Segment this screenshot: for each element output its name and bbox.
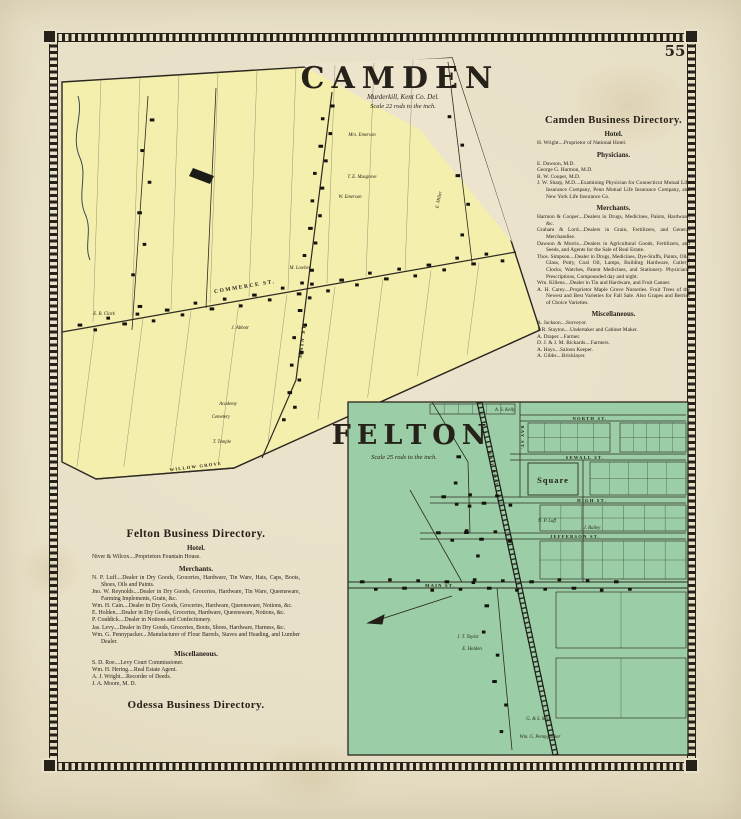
directory-entry: J. A. Moore, M. D. bbox=[92, 681, 300, 688]
building-mark bbox=[320, 187, 325, 190]
building-mark bbox=[293, 406, 297, 409]
felton-directory: Felton Business Directory. Hotel. Niver … bbox=[92, 528, 300, 711]
directory-entry: P. Craddick....Dealer in Notions and Con… bbox=[92, 617, 300, 624]
building-mark bbox=[339, 279, 344, 282]
building-mark bbox=[416, 579, 420, 582]
building-mark bbox=[614, 580, 619, 583]
directory-section-heading: Hotel. bbox=[92, 544, 300, 552]
building-mark bbox=[494, 530, 498, 533]
building-mark bbox=[485, 253, 489, 256]
directory-entry: A. H. Carey....Proprietor Maple Grove Nu… bbox=[537, 287, 690, 307]
building-mark bbox=[300, 282, 304, 285]
building-mark bbox=[430, 589, 434, 592]
building-mark bbox=[479, 538, 484, 541]
building-mark bbox=[572, 587, 577, 590]
directory-section-heading: Miscellaneous. bbox=[92, 650, 300, 658]
building-mark bbox=[298, 379, 302, 382]
map-label: Wm. G. Pennypacker bbox=[520, 735, 561, 740]
map-label: Mrs. Emerson bbox=[347, 133, 376, 138]
building-mark bbox=[460, 233, 464, 236]
building-mark bbox=[93, 328, 97, 331]
directory-title: Camden Business Directory. bbox=[537, 115, 690, 126]
building-mark bbox=[558, 578, 562, 581]
map-label: G. & S. Mill bbox=[526, 717, 550, 722]
directory-entry: H. Wright....Proprietor of National Hote… bbox=[537, 140, 690, 147]
map-label: M. Lowber bbox=[288, 266, 310, 271]
building-mark bbox=[473, 578, 477, 581]
building-mark bbox=[360, 580, 365, 583]
odessa-directory-heading: Odessa Business Directory. bbox=[92, 699, 300, 711]
building-mark bbox=[413, 274, 417, 277]
directory-entry: D. J. & J. M. Rickards....Farmers. bbox=[537, 340, 690, 347]
directory-entry: A. Hays....Saloon Keeper. bbox=[537, 347, 690, 354]
directory-title: Felton Business Directory. bbox=[92, 528, 300, 540]
building-mark bbox=[140, 149, 144, 152]
camden-directory: Camden Business Directory. Hotel. H. Wri… bbox=[537, 115, 690, 360]
street-label-jefferson: JEFFERSON ST. bbox=[550, 534, 600, 539]
building-mark bbox=[460, 144, 464, 147]
building-mark bbox=[310, 283, 314, 286]
building-mark bbox=[484, 604, 489, 607]
building-mark bbox=[455, 257, 459, 260]
building-mark bbox=[106, 317, 110, 320]
building-mark bbox=[287, 391, 292, 394]
building-mark bbox=[282, 418, 286, 421]
building-mark bbox=[194, 302, 198, 305]
building-mark bbox=[465, 529, 469, 532]
building-mark bbox=[308, 227, 313, 230]
building-mark bbox=[297, 292, 302, 295]
directory-entry: Wm. Killens....Dealer in Tin and Hardwar… bbox=[537, 280, 690, 287]
building-mark bbox=[314, 241, 318, 244]
building-mark bbox=[355, 283, 359, 286]
building-mark bbox=[495, 494, 499, 497]
building-mark bbox=[586, 579, 590, 582]
directory-entry: E. Dawson, M.D. bbox=[537, 161, 690, 168]
map-label: W. Emerson bbox=[338, 195, 362, 200]
building-mark bbox=[504, 703, 508, 706]
building-mark bbox=[384, 277, 389, 280]
building-mark bbox=[321, 117, 325, 120]
felton-map: FELTON Scale 25 rods to the inch. NORTH … bbox=[332, 402, 688, 755]
building-mark bbox=[138, 305, 143, 308]
building-mark bbox=[329, 132, 333, 135]
directory-entry: Jas. Levy....Dealer in Dry Goods, Grocer… bbox=[92, 625, 300, 632]
building-mark bbox=[466, 203, 470, 206]
camden-map-region: Murderkill, Kent Co. Del. bbox=[366, 93, 439, 101]
building-mark bbox=[468, 505, 472, 508]
building-mark bbox=[459, 588, 463, 591]
building-mark bbox=[303, 254, 307, 257]
building-mark bbox=[268, 298, 272, 301]
directory-section-heading: Miscellaneous. bbox=[537, 310, 690, 318]
directory-section-heading: Merchants. bbox=[537, 204, 690, 212]
building-mark bbox=[501, 579, 505, 582]
building-mark bbox=[487, 587, 492, 590]
directory-entry: Harmon & Cooper....Dealers in Drugs, Med… bbox=[537, 214, 690, 227]
building-mark bbox=[441, 495, 446, 498]
building-mark bbox=[471, 262, 476, 265]
building-mark bbox=[472, 581, 476, 584]
building-mark bbox=[456, 455, 461, 458]
map-label: E. Holden bbox=[461, 647, 482, 652]
building-mark bbox=[308, 296, 312, 299]
building-mark bbox=[388, 578, 392, 581]
street-label-main: MAIN ST. bbox=[425, 583, 455, 588]
map-label: J. T. Taylor bbox=[457, 635, 479, 640]
map-label: A. S. Kelly bbox=[494, 408, 516, 413]
directory-entry: A. Draper....Farmer. bbox=[537, 334, 690, 341]
building-mark bbox=[143, 243, 147, 246]
building-mark bbox=[628, 588, 632, 591]
street-label-bay: BAY ST. bbox=[520, 425, 525, 450]
building-mark bbox=[468, 493, 472, 496]
building-mark bbox=[281, 287, 285, 290]
building-mark bbox=[427, 264, 432, 267]
map-label-square: Square bbox=[537, 475, 569, 485]
building-mark bbox=[482, 631, 486, 634]
building-mark bbox=[318, 145, 323, 148]
building-mark bbox=[543, 588, 547, 591]
building-mark bbox=[448, 115, 452, 118]
map-label: J. Bailey bbox=[584, 526, 602, 531]
building-mark bbox=[122, 322, 127, 325]
building-mark bbox=[501, 259, 505, 262]
building-mark bbox=[509, 504, 513, 507]
directory-section-heading: Merchants. bbox=[92, 565, 300, 573]
map-label: T. Temple bbox=[213, 440, 232, 445]
building-mark bbox=[292, 336, 296, 339]
camden-map-scale: Scale 22 rods to the inch. bbox=[370, 103, 436, 110]
directory-entry: A. J. Wright....Recorder of Deeds. bbox=[92, 674, 300, 681]
building-mark bbox=[239, 304, 243, 307]
building-mark bbox=[152, 319, 156, 322]
felton-map-scale: Scale 25 rods to the inch. bbox=[371, 454, 437, 461]
building-mark bbox=[210, 307, 215, 310]
building-mark bbox=[148, 181, 152, 184]
camden-map-title: CAMDEN bbox=[301, 61, 500, 96]
map-label: J. Abbott bbox=[231, 326, 249, 331]
building-mark bbox=[397, 268, 401, 271]
directory-entry: A. Gibbs....Bricklayer. bbox=[537, 353, 690, 360]
street-label-sewall: SEWALL ST. bbox=[566, 455, 604, 460]
building-mark bbox=[252, 294, 257, 297]
building-mark bbox=[298, 309, 303, 312]
directory-entry: Wm. G. Pennypacker....Manufacturer of Fl… bbox=[92, 632, 300, 646]
building-mark bbox=[492, 680, 497, 683]
felton-map-title: FELTON bbox=[332, 420, 493, 451]
building-mark bbox=[600, 589, 604, 592]
map-label: T. E. Musgrove bbox=[347, 175, 377, 180]
directory-entry: Wm. H. Hering....Real Estate Agent. bbox=[92, 667, 300, 674]
map-label: Cemetery bbox=[212, 415, 231, 420]
building-mark bbox=[476, 554, 480, 557]
building-mark bbox=[330, 104, 335, 107]
directory-entry: George G. Harmon, M.D. bbox=[537, 167, 690, 174]
building-mark bbox=[455, 503, 459, 506]
map-label: N. P. Luff bbox=[537, 519, 557, 524]
building-mark bbox=[290, 364, 294, 367]
map-label: E. B. Clark bbox=[92, 312, 115, 317]
building-mark bbox=[500, 730, 504, 733]
directory-entry: Graham & Lord....Dealers in Grain, Ferti… bbox=[537, 227, 690, 240]
directory-entry: S. D. Roe....Levy Court Commissioner. bbox=[92, 660, 300, 667]
building-mark bbox=[515, 589, 519, 592]
building-mark bbox=[529, 580, 534, 583]
directory-entry: A. Jackson....Surveyor. bbox=[537, 320, 690, 327]
directory-entry: Thos. Simpson....Dealer in Drugs, Medici… bbox=[537, 254, 690, 280]
building-mark bbox=[450, 539, 454, 542]
building-mark bbox=[402, 587, 407, 590]
building-mark bbox=[326, 289, 330, 292]
atlas-page: 55 bbox=[0, 0, 741, 819]
building-mark bbox=[78, 324, 83, 327]
directory-entry: Jno. W. Reynolds....Dealer in Dry Goods,… bbox=[92, 589, 300, 603]
building-mark bbox=[454, 482, 458, 485]
directory-entry: N. P. Luff....Dealer in Dry Goods, Groce… bbox=[92, 575, 300, 589]
building-mark bbox=[482, 502, 487, 505]
directory-section-heading: Physicians. bbox=[537, 151, 690, 159]
building-mark bbox=[131, 273, 135, 276]
building-mark bbox=[150, 118, 155, 121]
building-mark bbox=[223, 298, 227, 301]
directory-entry: Wm. H. Cain....Dealer in Dry Goods, Groc… bbox=[92, 603, 300, 610]
street-label-north: NORTH ST. bbox=[572, 416, 607, 421]
building-mark bbox=[324, 159, 328, 162]
building-mark bbox=[368, 272, 372, 275]
directory-entry: J. R. Stayton....Undertaker and Cabinet … bbox=[537, 327, 690, 334]
directory-section-heading: Hotel. bbox=[537, 130, 690, 138]
building-mark bbox=[456, 174, 461, 177]
map-label: Academy bbox=[218, 402, 237, 407]
building-mark bbox=[318, 214, 322, 217]
building-mark bbox=[181, 313, 185, 316]
building-mark bbox=[137, 211, 142, 214]
building-mark bbox=[136, 313, 140, 316]
building-mark bbox=[374, 588, 378, 591]
building-mark bbox=[508, 540, 512, 543]
building-mark bbox=[311, 199, 315, 202]
building-mark bbox=[496, 654, 500, 657]
directory-entry: Dawson & Morris....Dealers in Agricultur… bbox=[537, 241, 690, 254]
building-mark bbox=[165, 309, 170, 312]
directory-entry: Niver & Wilcox....Proprietors Fountain H… bbox=[92, 554, 300, 561]
directory-entry: J. W. Sharp, M.D....Examining Physician … bbox=[537, 180, 690, 200]
building-mark bbox=[436, 531, 441, 534]
building-mark bbox=[313, 172, 317, 175]
street-label-high: HIGH ST. bbox=[577, 498, 607, 503]
building-mark bbox=[442, 268, 446, 271]
